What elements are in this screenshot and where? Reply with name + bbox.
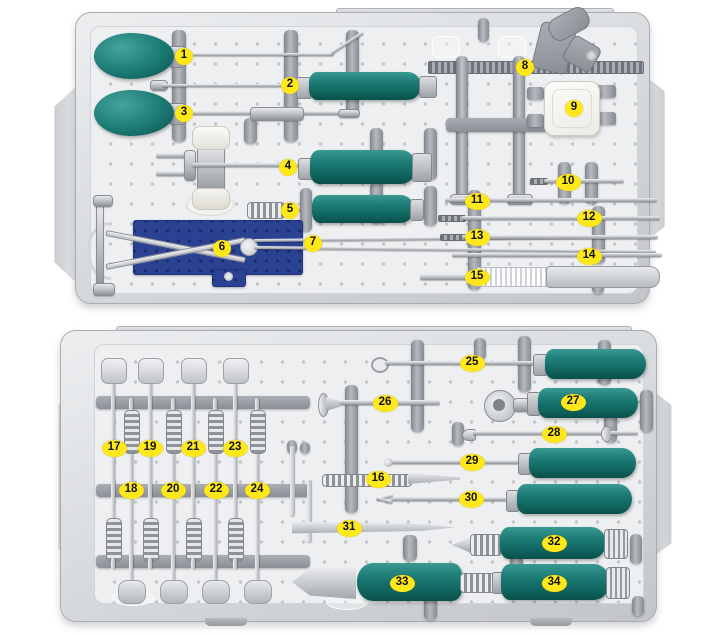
marker-22: 22: [204, 482, 229, 499]
marker-16: 16: [366, 471, 391, 488]
instrument-30-shaft: [391, 497, 511, 501]
marker-17: 17: [102, 440, 127, 457]
gauge-tip: [233, 558, 237, 570]
gauge-cap-bottom: [202, 580, 230, 604]
marker-5: 5: [281, 202, 299, 219]
instrument-32-stepped-shaft: [470, 534, 502, 556]
marker-11: 11: [465, 193, 490, 210]
surgical-instrument-set-photo: 1234567891011121314151617181920212223242…: [0, 0, 720, 635]
gauge-tip: [191, 558, 195, 570]
gauge-tip: [148, 558, 152, 570]
marker-28: 28: [542, 426, 567, 443]
marker-24: 24: [245, 482, 270, 499]
instrument-29-shaft: [392, 460, 522, 464]
marker-32: 32: [542, 535, 567, 552]
gauge-tip: [111, 558, 115, 570]
marker-10: 10: [556, 174, 581, 191]
instrument-29-handle: [529, 448, 636, 478]
gauge-ribbed-section: [186, 518, 202, 562]
instrument-25-handle: [545, 349, 646, 379]
gauge-ribbed-section: [106, 518, 122, 562]
marker-3: 3: [175, 105, 193, 122]
marker-8: 8: [516, 59, 534, 76]
marker-20: 20: [161, 482, 186, 499]
marker-19: 19: [138, 440, 163, 457]
gauge-ribbed-section: [143, 518, 159, 562]
gauge-cap-top: [223, 358, 249, 384]
marker-34: 34: [542, 575, 567, 592]
marker-6: 6: [213, 240, 231, 257]
marker-1: 1: [175, 48, 193, 65]
gauge-cap-top: [101, 358, 127, 384]
marker-31: 31: [337, 520, 362, 537]
marker-18: 18: [119, 482, 144, 499]
marker-7: 7: [304, 235, 322, 252]
marker-30: 30: [459, 491, 484, 508]
marker-23: 23: [223, 440, 248, 457]
marker-33: 33: [390, 575, 415, 592]
instrument-30-handle: [517, 484, 632, 514]
gauge-ribbed-section: [166, 410, 182, 454]
gauge-cap-top: [138, 358, 164, 384]
gauge-cap-bottom: [118, 580, 146, 604]
marker-4: 4: [279, 159, 297, 176]
instrument-28-rod-end: [610, 431, 638, 435]
marker-14: 14: [577, 248, 602, 265]
gauge-ribbed-section: [228, 518, 244, 562]
instrument-32-end-cap: [604, 529, 628, 559]
gauge-cap-bottom: [160, 580, 188, 604]
instrument-28-rod: [473, 431, 603, 435]
marker-15: 15: [465, 269, 490, 286]
gauge-ribbed-section: [208, 410, 224, 454]
instrument-34-end-cap: [606, 567, 630, 599]
marker-13: 13: [465, 229, 490, 246]
gauge-ribbed-section: [250, 410, 266, 454]
marker-12: 12: [577, 210, 602, 227]
vertical-slide-rod: [290, 446, 295, 516]
marker-25: 25: [460, 355, 485, 372]
gauge-cap-bottom: [244, 580, 272, 604]
marker-26: 26: [373, 395, 398, 412]
marker-2: 2: [281, 77, 299, 94]
marker-29: 29: [460, 454, 485, 471]
instrument-27-handle: [538, 388, 638, 418]
gauge-cap-top: [181, 358, 207, 384]
instrument-25-ring-tip: [371, 357, 389, 373]
marker-27: 27: [561, 394, 586, 411]
instrument-27-ring-hole: [493, 399, 505, 411]
marker-21: 21: [181, 440, 206, 457]
marker-9: 9: [565, 100, 583, 117]
